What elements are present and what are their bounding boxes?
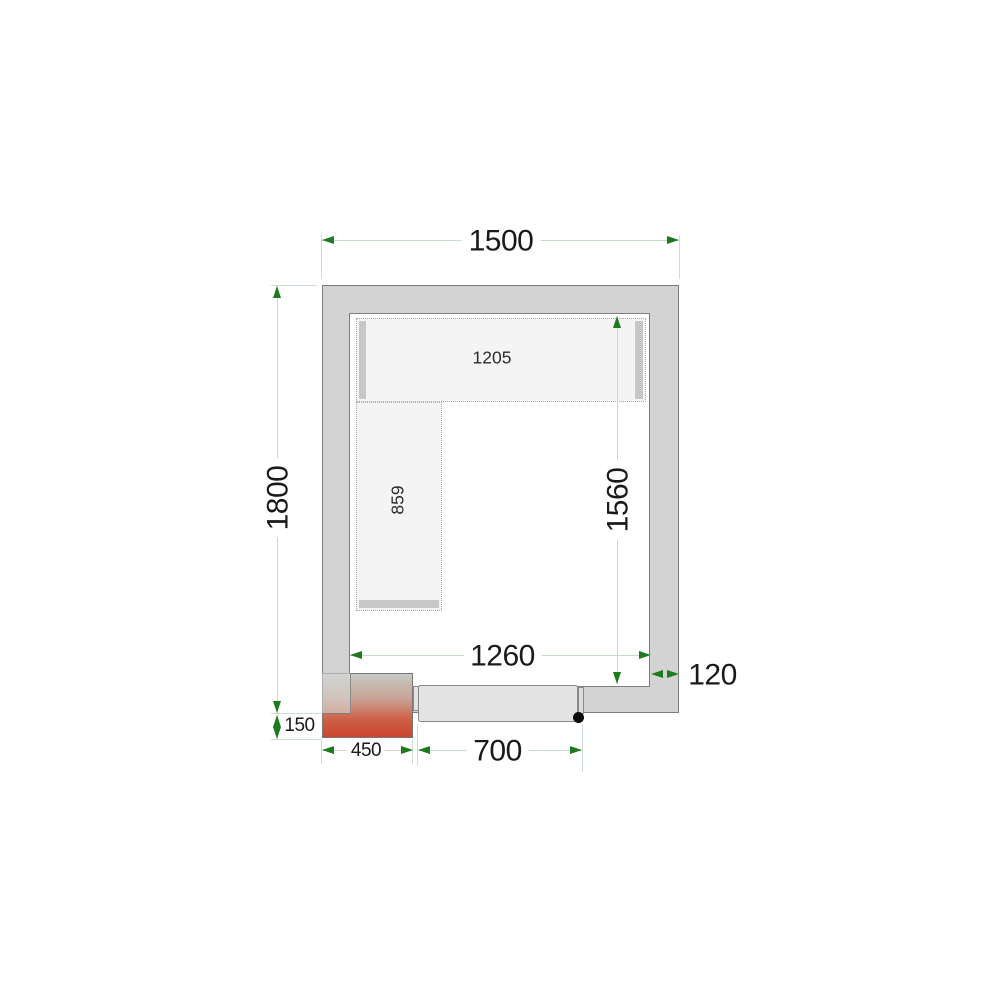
arrow-down-icon xyxy=(273,701,281,713)
arrow-right-icon xyxy=(639,651,651,659)
arrow-right-icon xyxy=(667,236,679,244)
arrow-left-icon xyxy=(418,746,430,754)
arrow-right-icon xyxy=(401,746,413,754)
dim-wall-thickness-label: 120 xyxy=(681,660,744,692)
shelf-end-cap xyxy=(359,600,439,608)
dim-inner-depth-label: 1560 xyxy=(602,461,634,540)
dim-door-opening-label: 700 xyxy=(466,735,529,767)
door-hinge-dot xyxy=(573,712,584,723)
dim-depth-label: 1800 xyxy=(262,458,294,537)
dim-inner-width-label: 1260 xyxy=(463,640,542,672)
arrow-up-icon xyxy=(273,286,281,298)
shelf-end-cap xyxy=(635,321,643,399)
ext-line xyxy=(582,724,583,772)
door-panel xyxy=(418,685,578,723)
dim-unit-width-label: 450 xyxy=(347,741,385,761)
wall-over-unit xyxy=(322,673,351,714)
door-jamb-right xyxy=(578,687,584,714)
dim-width-label: 1500 xyxy=(462,225,541,257)
arrow-left-icon xyxy=(651,670,663,678)
arrow-left-icon xyxy=(322,236,334,244)
ext-line xyxy=(417,724,418,766)
top-shelf-length-label: 1205 xyxy=(473,349,512,367)
arrow-right-icon xyxy=(570,746,582,754)
dim-unit-offset-label: 150 xyxy=(280,716,318,736)
ext-line xyxy=(271,739,321,740)
arrow-right-icon xyxy=(667,670,679,678)
left-shelf-length-label: 859 xyxy=(389,485,407,514)
arrow-up-icon xyxy=(613,316,621,328)
floor-plan: 1205 859 1500 1800 1560 1260 120 150 450 xyxy=(0,0,1000,1000)
shelf-end-cap xyxy=(359,321,367,399)
arrow-left-icon xyxy=(350,651,362,659)
arrow-left-icon xyxy=(322,746,334,754)
ext-line xyxy=(679,235,680,279)
arrow-down-icon xyxy=(613,672,621,684)
